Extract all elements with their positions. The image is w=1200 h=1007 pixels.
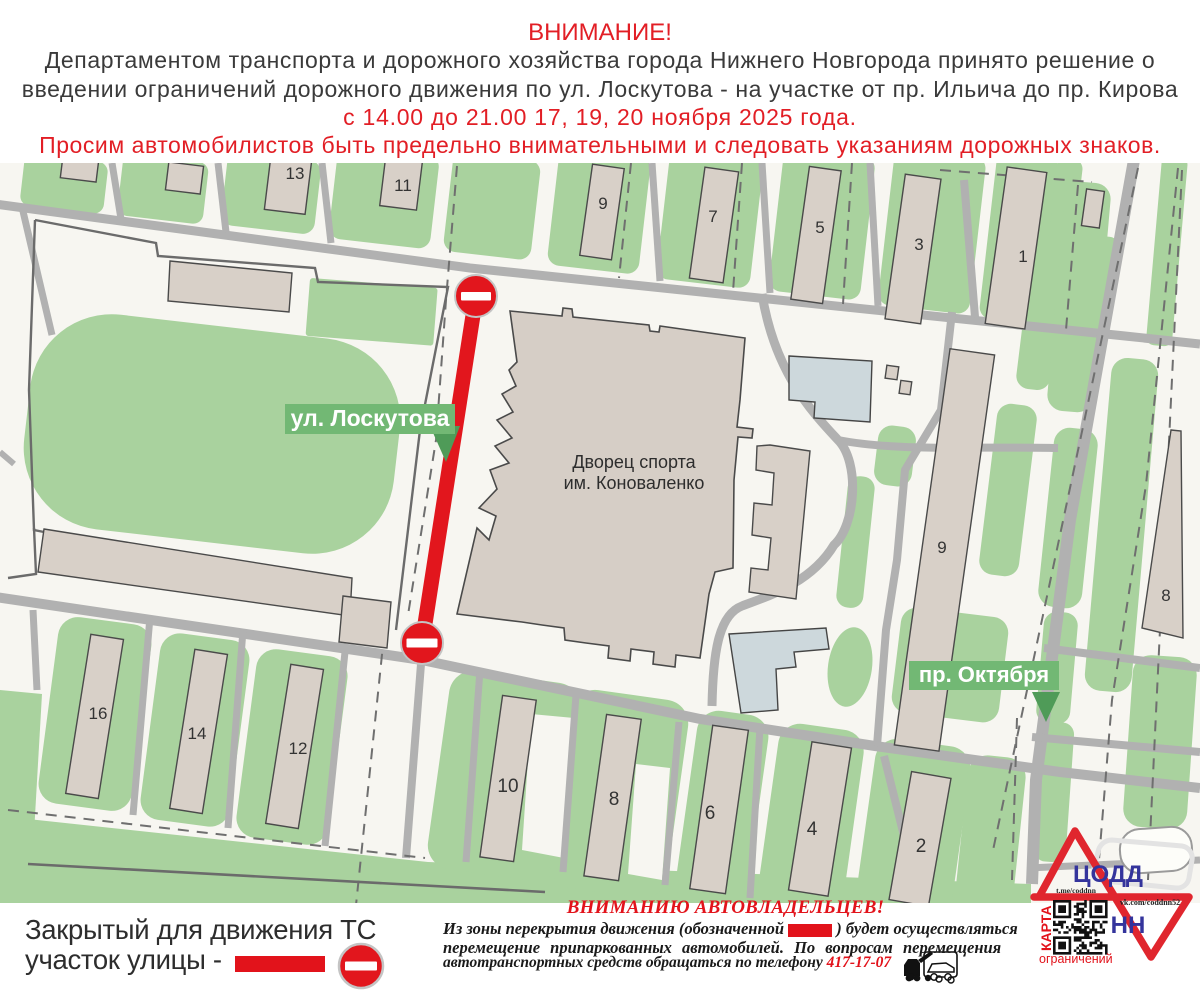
svg-text:6: 6 [705, 803, 716, 824]
svg-text:5: 5 [815, 218, 824, 237]
svg-text:4: 4 [807, 819, 818, 840]
svg-text:Дворец спорта: Дворец спорта [572, 452, 696, 472]
svg-text:1: 1 [1018, 247, 1027, 266]
svg-text:10: 10 [497, 776, 518, 797]
svg-text:3: 3 [914, 235, 923, 254]
svg-text:9: 9 [598, 194, 607, 213]
svg-text:ограничений: ограничений [1039, 952, 1113, 966]
svg-text:11: 11 [394, 176, 412, 195]
svg-text:16: 16 [89, 704, 108, 723]
svg-text:12: 12 [289, 739, 308, 758]
svg-text:14: 14 [188, 724, 207, 743]
svg-text:8: 8 [609, 789, 620, 810]
svg-text:пр. Октября: пр. Октября [919, 662, 1049, 687]
svg-text:им. Коноваленко: им. Коноваленко [564, 473, 705, 493]
svg-text:13: 13 [286, 164, 305, 183]
svg-text:vk.com/coddnn52: vk.com/coddnn52 [1120, 898, 1180, 907]
svg-text:9: 9 [937, 538, 946, 557]
svg-text:2: 2 [916, 836, 927, 857]
svg-text:ЦОДД: ЦОДД [1073, 861, 1143, 888]
svg-text:НН: НН [1111, 912, 1146, 939]
svg-text:t.me/coddnn: t.me/coddnn [1056, 886, 1097, 895]
svg-text:7: 7 [708, 207, 717, 226]
svg-text:ул. Лоскутова: ул. Лоскутова [291, 405, 450, 431]
svg-text:8: 8 [1161, 586, 1170, 605]
